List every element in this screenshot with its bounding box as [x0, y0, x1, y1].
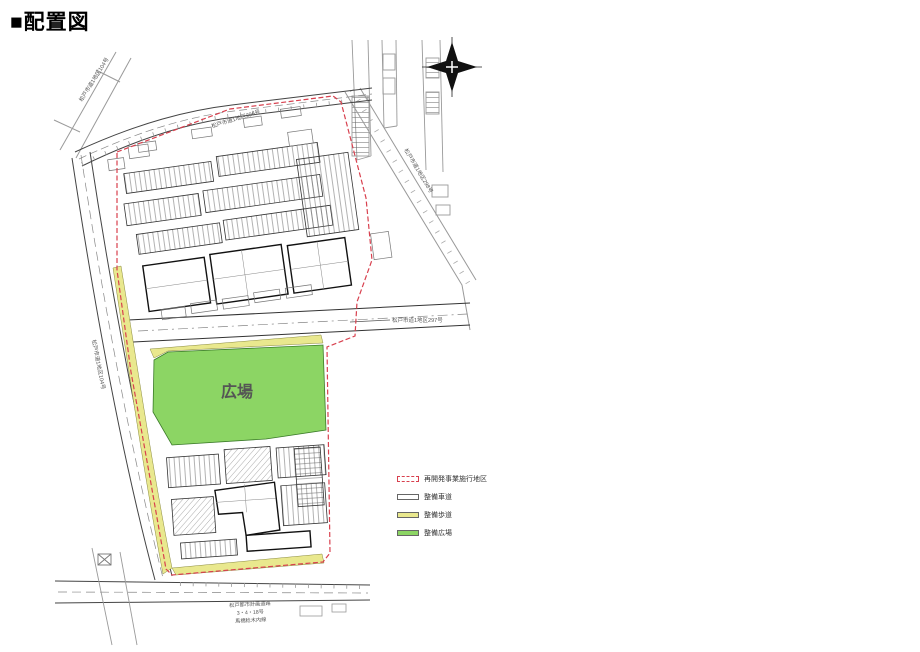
legend-label: 整備車道	[424, 492, 452, 502]
legend-item-sidewalk: 整備歩道	[397, 506, 507, 524]
svg-text:馬橋稔木内線: 馬橋稔木内線	[235, 615, 267, 625]
svg-text:3・4・18号: 3・4・18号	[237, 608, 264, 616]
plaza-area: 広場	[153, 345, 326, 445]
legend-swatch-plaza	[397, 530, 419, 536]
legend-item-district: 再開発事業施行地区	[397, 470, 507, 488]
road-right: 松戸市道1地区298号	[345, 88, 476, 330]
building-cluster-lower	[166, 443, 331, 560]
svg-text:松戸都市計画道路: 松戸都市計画道路	[229, 599, 272, 609]
road-left-label: 松戸市道1地区104号	[90, 339, 108, 391]
plaza-label: 広場	[221, 382, 253, 401]
road-bottom-label: 松戸都市計画道路 3・4・18号 馬橋稔木内線	[229, 599, 273, 625]
legend: 再開発事業施行地区 整備車道 整備歩道 整備広場	[397, 470, 507, 542]
road-middle-label: 松戸市道1地区297号	[392, 316, 443, 324]
road-top	[75, 88, 372, 166]
road-right-label: 松戸市道1地区298号	[402, 147, 435, 195]
legend-swatch-district	[397, 476, 419, 482]
compass-north-icon	[422, 37, 482, 97]
road-top-label: 松戸市道1地区296号	[210, 107, 261, 130]
road-bottomleft-stub	[92, 548, 137, 645]
legend-label: 整備歩道	[424, 510, 452, 520]
legend-label: 再開発事業施行地区	[424, 474, 487, 484]
site-plan-page: ■配置図	[0, 0, 920, 652]
legend-swatch-roadway	[397, 494, 419, 500]
road-topleft-label: 松戸市道1地区104号	[77, 55, 111, 103]
legend-label: 整備広場	[424, 528, 452, 538]
offsite-street-topleft	[54, 52, 131, 158]
crosswalk-icon	[98, 554, 111, 565]
legend-item-plaza: 整備広場	[397, 524, 507, 542]
site-plan-drawing: 松戸市道1地区298号 松戸市道1地区296号 松戸市道1地区104号 松戸市道…	[0, 0, 920, 652]
legend-swatch-sidewalk	[397, 512, 419, 518]
legend-item-roadway: 整備車道	[397, 488, 507, 506]
